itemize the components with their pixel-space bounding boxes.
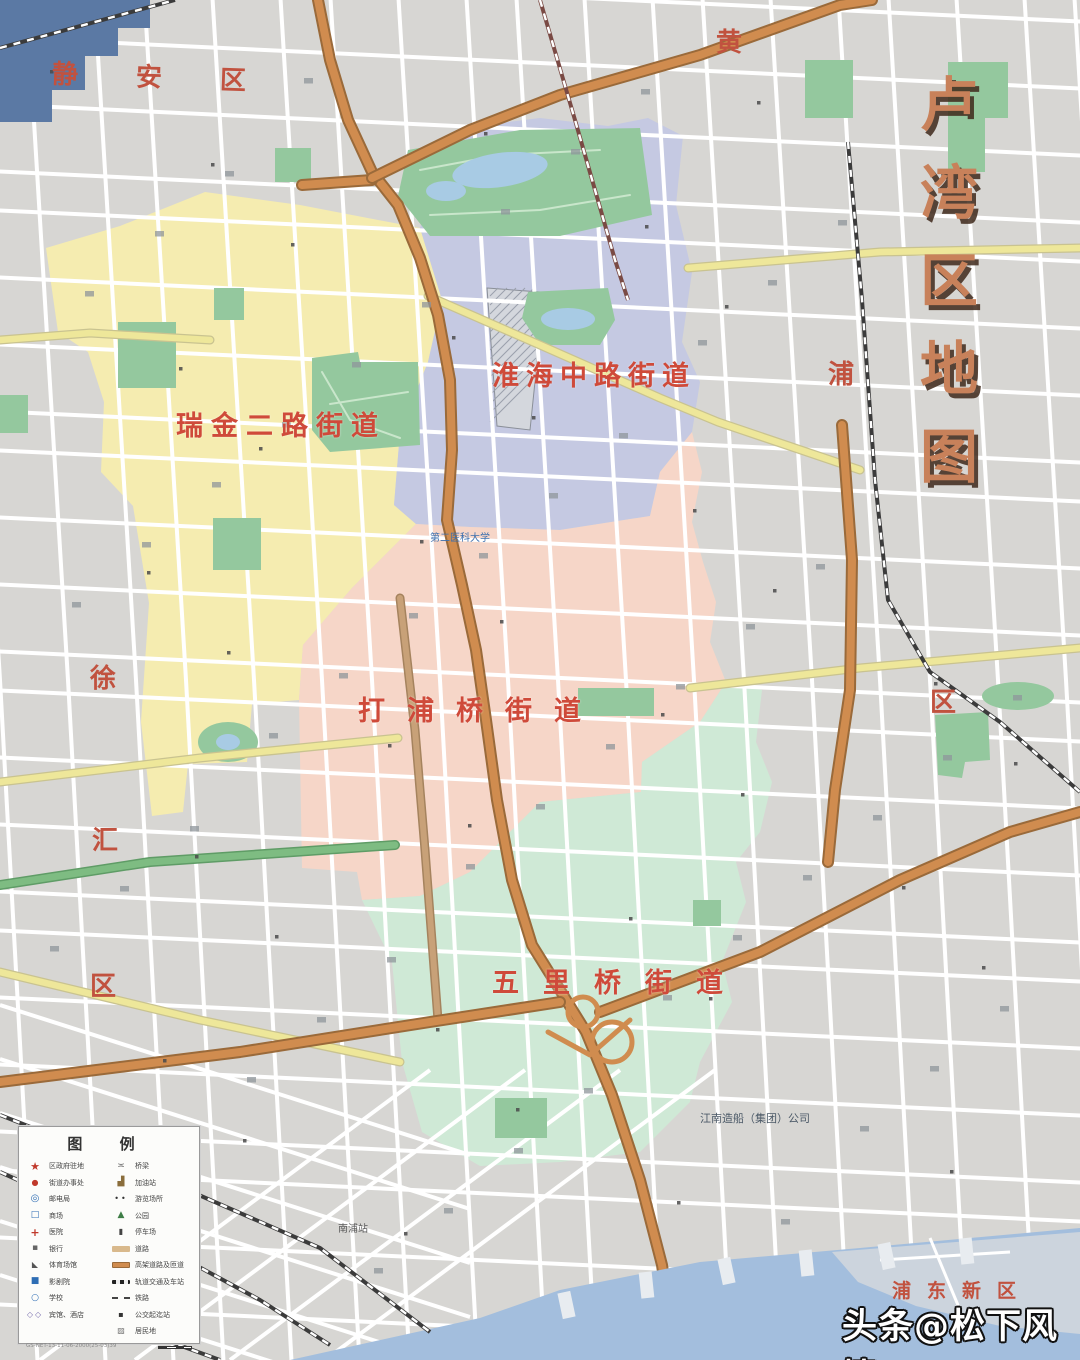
legend-label: 高架道路及匝道: [135, 1260, 184, 1270]
legend-row: ◇◇宾馆、酒店: [26, 1307, 106, 1324]
bar-orange-icon: [112, 1260, 130, 1270]
square-grey-icon: ▪: [26, 1244, 44, 1254]
legend-box: 图 例 ★区政府驻地●街道办事处◎邮电局□商场+医院▪银行◣体育场馆■影剧院○学…: [18, 1126, 200, 1344]
poi-label-nanpu-station: 南浦站: [338, 1220, 368, 1235]
legend-label: 邮电局: [49, 1194, 70, 1204]
legend-row: □商场: [26, 1208, 106, 1225]
legend-row: ○学校: [26, 1290, 106, 1307]
poi-label-university: 第二医科大学: [430, 529, 490, 544]
pump-icon: ▟: [112, 1178, 130, 1188]
poi-label-jiangnan-shipyard: 江南造船（集团）公司: [700, 1110, 810, 1126]
legend-row: +医院: [26, 1224, 106, 1241]
bridge-icon: ≍: [112, 1161, 130, 1171]
legend-row: ••游览场所: [112, 1191, 192, 1208]
legend-label: 居民地: [135, 1326, 156, 1336]
legend-label: 商场: [49, 1211, 63, 1221]
bar-rail-icon: [112, 1277, 130, 1287]
legend-note: GS-NET-13-11-06-2000(25-03)39: [26, 1343, 116, 1349]
legend-row: ◎邮电局: [26, 1191, 106, 1208]
hatch-icon: ▨: [112, 1326, 130, 1336]
legend-row: ▨居民地: [112, 1323, 192, 1340]
cross-red-icon: +: [26, 1227, 44, 1237]
legend-label: 银行: [49, 1244, 63, 1254]
diamond-pair-icon: ◇◇: [26, 1310, 44, 1320]
block-dark-icon: ▮: [112, 1227, 130, 1237]
legend-column-left: ★区政府驻地●街道办事处◎邮电局□商场+医院▪银行◣体育场馆■影剧院○学校◇◇宾…: [26, 1158, 106, 1340]
legend-label: 停车场: [135, 1227, 156, 1237]
legend-row: ▟加油站: [112, 1175, 192, 1192]
legend-row: 高架道路及匝道: [112, 1257, 192, 1274]
legend-row: 道路: [112, 1241, 192, 1258]
legend-row: ≍桥梁: [112, 1158, 192, 1175]
legend-label: 轨道交通及车站: [135, 1277, 184, 1287]
legend-label: 公园: [135, 1211, 149, 1221]
legend-label: 道路: [135, 1244, 149, 1254]
line-rail-icon: [112, 1293, 130, 1303]
legend-row: 轨道交通及车站: [112, 1274, 192, 1291]
dot-dark-icon: ▪: [112, 1310, 130, 1320]
legend-row: ★区政府驻地: [26, 1158, 106, 1175]
legend-label: 医院: [49, 1227, 63, 1237]
watermark: 头条@松下风情: [842, 1298, 1080, 1360]
square-blue-fill-icon: ■: [26, 1277, 44, 1287]
bowtie-grey-icon: ◣: [26, 1260, 44, 1270]
legend-label: 游览场所: [135, 1194, 163, 1204]
legend-label: 宾馆、酒店: [49, 1310, 84, 1320]
legend-label: 区政府驻地: [49, 1161, 84, 1171]
legend-row: ▪公交起迄站: [112, 1307, 192, 1324]
legend-label: 公交起迄站: [135, 1310, 170, 1320]
scale-bar-icon: [158, 1346, 192, 1349]
dots-pair-icon: ••: [112, 1194, 130, 1204]
legend-row: ■影剧院: [26, 1274, 106, 1291]
legend-row: ▮停车场: [112, 1224, 192, 1241]
pin-blue-icon: ◎: [26, 1194, 44, 1204]
dot-red-icon: ●: [26, 1178, 44, 1188]
star-red-icon: ★: [26, 1161, 44, 1171]
legend-label: 街道办事处: [49, 1178, 84, 1188]
legend-label: 桥梁: [135, 1161, 149, 1171]
legend-label: 学校: [49, 1293, 63, 1303]
legend-label: 加油站: [135, 1178, 156, 1188]
circle-blue-icon: ○: [26, 1293, 44, 1303]
square-blue-icon: □: [26, 1211, 44, 1221]
legend-label: 影剧院: [49, 1277, 70, 1287]
legend-row: ▲公园: [112, 1208, 192, 1225]
legend-row: ▪银行: [26, 1241, 106, 1258]
legend-title: 图 例: [26, 1133, 192, 1154]
bar-tan-icon: [112, 1244, 130, 1254]
tree-icon: ▲: [112, 1211, 130, 1221]
legend-label: 体育场馆: [49, 1260, 77, 1270]
legend-row: ◣体育场馆: [26, 1257, 106, 1274]
map-canvas: 瑞金二路街道 淮海中路街道 打浦桥街道 五里桥街道 静安区 黄 浦 区 徐 汇 …: [0, 0, 1080, 1360]
legend-row: ●街道办事处: [26, 1175, 106, 1192]
legend-row: 铁路: [112, 1290, 192, 1307]
legend-column-right: ≍桥梁▟加油站••游览场所▲公园▮停车场道路高架道路及匝道轨道交通及车站铁路▪公…: [112, 1158, 192, 1340]
legend-label: 铁路: [135, 1293, 149, 1303]
